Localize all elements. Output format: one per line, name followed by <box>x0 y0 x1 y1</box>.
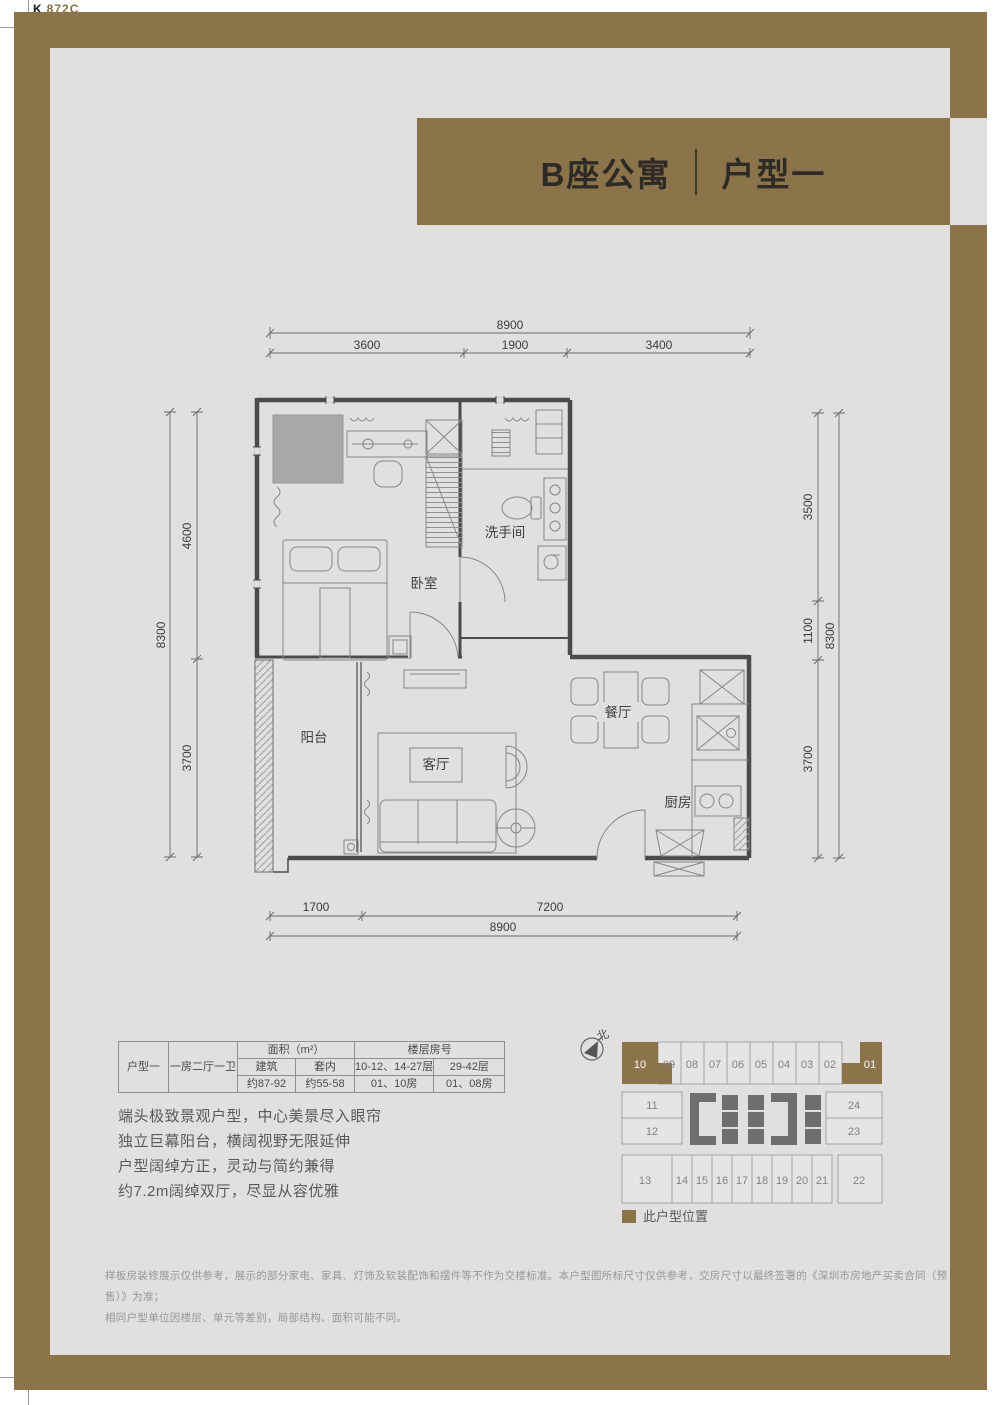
room-labels: 洗手间 卧室 阳台 客厅 餐厅 厨房 <box>301 525 692 810</box>
spec-floor-col-1: 29-42层 <box>434 1059 505 1076</box>
unit-01: 01 <box>864 1059 876 1071</box>
dim-top-seg-0: 3600 <box>354 338 381 352</box>
unit-10: 10 <box>634 1059 646 1071</box>
spec-layout: 一房二厅一卫 <box>169 1042 238 1093</box>
room-label-bathroom: 洗手间 <box>485 525 526 540</box>
unit-12: 12 <box>646 1126 658 1138</box>
spec-floor-header: 楼层房号 <box>355 1042 505 1059</box>
dim-left-seg-0: 4600 <box>180 522 194 549</box>
elevator-core <box>690 1093 821 1145</box>
spec-floor-val-0: 01、10房 <box>355 1076 434 1093</box>
frame-notch <box>950 118 987 225</box>
unit-21: 21 <box>816 1175 828 1187</box>
unit-11: 11 <box>646 1100 657 1112</box>
dim-right-seg-1: 1100 <box>801 618 815 644</box>
dim-left-total: 8300 <box>154 621 168 648</box>
dim-top-seg-1: 1900 <box>502 338 529 352</box>
spec-area-val-1: 约55-58 <box>296 1076 355 1093</box>
building-title: B座公寓 <box>541 148 672 196</box>
room-label-bedroom: 卧室 <box>411 575 438 591</box>
key-plan-legend: 此户型位置 <box>622 1209 708 1224</box>
unit-24: 24 <box>848 1100 860 1112</box>
unit-02: 02 <box>824 1059 836 1071</box>
unit-14: 14 <box>676 1175 688 1187</box>
crop-mark-bottom-h <box>0 1377 14 1378</box>
unit-15: 15 <box>696 1175 708 1187</box>
room-label-dining: 餐厅 <box>605 705 632 720</box>
dim-top-seg-2: 3400 <box>646 338 673 352</box>
spec-floor-val-1: 01、08房 <box>434 1076 505 1093</box>
unit-18: 18 <box>756 1175 768 1187</box>
spec-floor-col-0: 10-12、14-27层 <box>355 1059 434 1076</box>
room-label-kitchen: 厨房 <box>665 795 692 810</box>
unit-09: 09 <box>663 1059 675 1071</box>
feature-line-1: 端头极致景观户型，中心美景尽入眼帘 <box>118 1104 382 1129</box>
dim-right-seg-2: 3700 <box>801 745 815 772</box>
feature-line-3: 户型阔绰方正，灵动与简约兼得 <box>118 1154 382 1179</box>
unit-04: 04 <box>778 1059 790 1071</box>
key-plan: 北 10 09 08 07 06 05 04 03 02 01 11 <box>565 1015 890 1230</box>
crop-mark-top-h <box>0 27 14 28</box>
room-label-living: 客厅 <box>423 756 450 772</box>
dim-right-seg-0: 3500 <box>801 493 815 520</box>
spec-unit-type: 户型一 <box>119 1042 169 1093</box>
dim-bottom-seg-0: 1700 <box>303 900 330 914</box>
unit-20: 20 <box>796 1175 808 1187</box>
room-label-balcony: 阳台 <box>301 730 328 745</box>
disclaimer: 样板房装修展示仅供参考，展示的部分家电、家具、灯饰及软装配饰和摆件等不作为交楼标… <box>105 1266 950 1329</box>
dim-right-total: 8300 <box>823 622 837 649</box>
unit-19: 19 <box>776 1175 788 1187</box>
disclaimer-line-1: 样板房装修展示仅供参考，展示的部分家电、家具、灯饰及软装配饰和摆件等不作为交楼标… <box>105 1266 950 1308</box>
unit-13: 13 <box>639 1175 651 1187</box>
unit-05: 05 <box>755 1059 767 1071</box>
title-band: B座公寓 户型一 <box>417 118 950 225</box>
spec-table: 户型一 一房二厅一卫 面积（m²） 楼层房号 建筑 套内 10-12、14-27… <box>118 1041 505 1093</box>
feature-list: 端头极致景观户型，中心美景尽入眼帘 独立巨幕阳台，横阔视野无限延伸 户型阔绰方正… <box>118 1104 382 1204</box>
disclaimer-line-2: 相同户型单位因楼层、单元等差别，局部结构、面积可能不同。 <box>105 1308 950 1329</box>
crop-mark-bottom <box>28 1390 29 1405</box>
legend-label: 此户型位置 <box>643 1209 708 1224</box>
unit-22: 22 <box>853 1175 865 1187</box>
floor-plan: 8900 3600 1900 3400 1700 7200 8900 4600 … <box>140 300 855 960</box>
spec-area-val-0: 约87-92 <box>238 1076 296 1093</box>
key-plan-bottom-row <box>622 1155 882 1203</box>
unit-23: 23 <box>848 1126 860 1138</box>
title-divider <box>695 149 697 195</box>
unit-03: 03 <box>801 1059 813 1071</box>
unit-17: 17 <box>736 1175 748 1187</box>
spec-area-header: 面积（m²） <box>238 1042 355 1059</box>
spec-area-col-1: 套内 <box>296 1059 355 1076</box>
brochure-page: K872C B座公寓 户型一 8900 <box>0 0 1000 1405</box>
legend-swatch-icon <box>622 1210 636 1223</box>
unit-16: 16 <box>716 1175 728 1187</box>
north-label: 北 <box>595 1027 611 1044</box>
dim-bottom-seg-1: 7200 <box>537 900 564 914</box>
key-plan-top-row <box>622 1042 882 1084</box>
unit-06: 06 <box>732 1059 744 1071</box>
feature-line-4: 约7.2m阔绰双厅，尽显从容优雅 <box>118 1179 382 1204</box>
north-compass: 北 <box>581 1027 611 1060</box>
unit-07: 07 <box>709 1059 721 1071</box>
dim-left-seg-1: 3700 <box>180 744 194 771</box>
dim-top-total: 8900 <box>497 318 524 332</box>
feature-line-2: 独立巨幕阳台，横阔视野无限延伸 <box>118 1129 382 1154</box>
unit-type-title: 户型一 <box>721 148 826 196</box>
spec-area-col-0: 建筑 <box>238 1059 296 1076</box>
unit-08: 08 <box>686 1059 698 1071</box>
compass-needle-icon <box>584 1041 598 1058</box>
dim-bottom-total: 8900 <box>490 920 517 934</box>
